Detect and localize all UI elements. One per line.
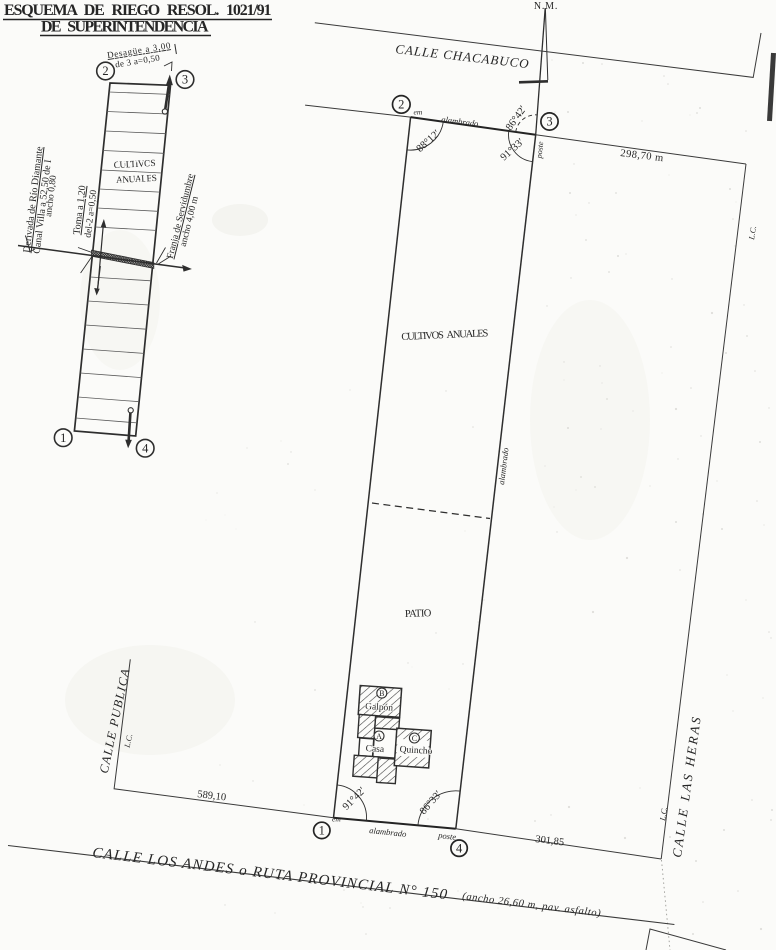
svg-text:A: A bbox=[376, 732, 382, 741]
svg-text:poste: poste bbox=[534, 141, 545, 160]
svg-text:em: em bbox=[332, 815, 341, 824]
svg-text:ANUALES: ANUALES bbox=[116, 174, 157, 186]
svg-text:1: 1 bbox=[319, 824, 325, 838]
svg-text:2: 2 bbox=[398, 98, 404, 112]
svg-text:4: 4 bbox=[142, 441, 149, 455]
svg-text:PATIO: PATIO bbox=[405, 608, 432, 620]
svg-text:ESQUEMA DE RIEGO RESOL. 1021/9: ESQUEMA DE RIEGO RESOL. 1021/91 bbox=[4, 2, 272, 19]
svg-text:3: 3 bbox=[182, 73, 188, 87]
svg-text:C: C bbox=[412, 734, 417, 743]
svg-text:DE SUPERINTENDENCIA: DE SUPERINTENDENCIA bbox=[41, 19, 209, 36]
svg-text:em: em bbox=[414, 108, 423, 117]
svg-text:B: B bbox=[379, 689, 384, 698]
svg-text:poste: poste bbox=[437, 830, 457, 842]
svg-text:2: 2 bbox=[102, 64, 108, 78]
svg-text:1: 1 bbox=[60, 431, 66, 445]
svg-text:N.M.: N.M. bbox=[534, 1, 558, 12]
svg-text:Casa: Casa bbox=[365, 744, 385, 755]
svg-text:Quincho: Quincho bbox=[399, 745, 433, 757]
svg-text:Galpón: Galpón bbox=[365, 702, 394, 714]
svg-text:3: 3 bbox=[546, 115, 552, 129]
svg-text:4: 4 bbox=[456, 841, 463, 855]
